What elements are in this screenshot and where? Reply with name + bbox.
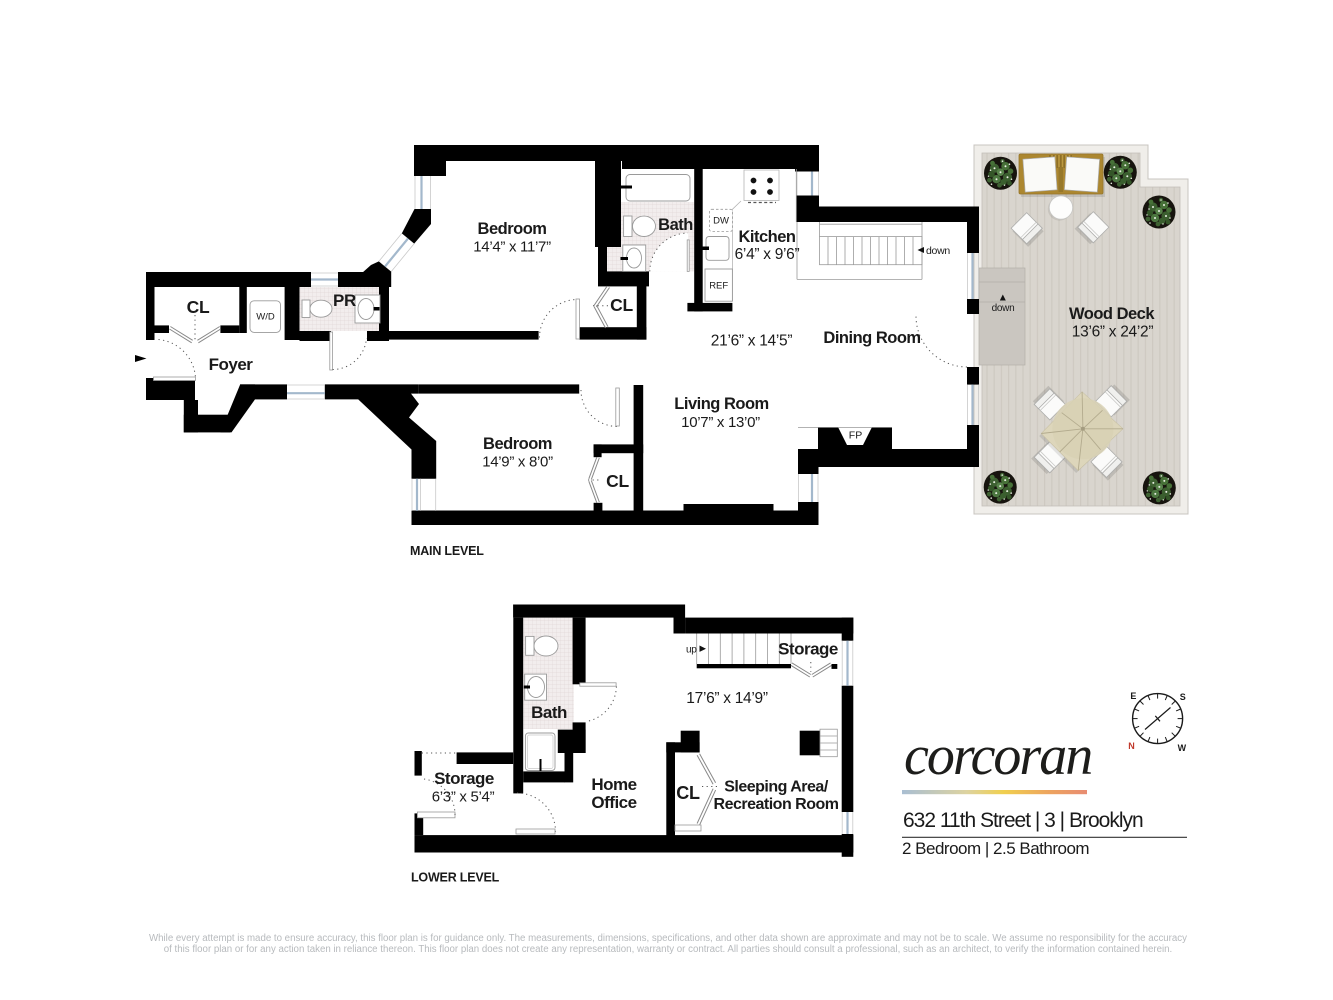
- svg-text:CL: CL: [676, 783, 700, 803]
- svg-text:21’6” x 14’5”: 21’6” x 14’5”: [711, 333, 793, 350]
- svg-text:Sleeping Area/: Sleeping Area/: [724, 779, 829, 796]
- svg-text:10’7” x 13’0”: 10’7” x 13’0”: [681, 414, 760, 431]
- svg-text:While every attempt is made to: While every attempt is made to ensure ac…: [149, 933, 1187, 944]
- svg-text:632 11th Street | 3 | Brooklyn: 632 11th Street | 3 | Brooklyn: [903, 809, 1143, 832]
- svg-text:of this floor plan or for any: of this floor plan or for any action tak…: [164, 944, 1172, 955]
- svg-text:Storage: Storage: [778, 640, 838, 659]
- svg-text:Office: Office: [591, 793, 636, 812]
- svg-text:down: down: [992, 303, 1015, 314]
- svg-text:LOWER LEVEL: LOWER LEVEL: [411, 871, 500, 885]
- svg-text:CL: CL: [606, 471, 629, 491]
- svg-text:Dining Room: Dining Room: [823, 329, 920, 347]
- svg-text:Home: Home: [591, 775, 636, 794]
- svg-text:FP: FP: [849, 430, 862, 442]
- svg-text:W: W: [1178, 743, 1187, 753]
- svg-text:Kitchen: Kitchen: [738, 228, 795, 246]
- svg-text:Living Room: Living Room: [674, 395, 768, 413]
- svg-text:Bath: Bath: [531, 703, 567, 722]
- svg-text:Recreation Room: Recreation Room: [714, 796, 839, 813]
- svg-text:6’3” x 5’4”: 6’3” x 5’4”: [432, 789, 495, 806]
- svg-text:S: S: [1180, 692, 1186, 702]
- svg-text:Bedroom: Bedroom: [483, 435, 552, 453]
- svg-text:N: N: [1128, 741, 1135, 751]
- svg-text:DW: DW: [713, 216, 729, 227]
- svg-text:up: up: [686, 645, 697, 656]
- svg-text:MAIN LEVEL: MAIN LEVEL: [410, 544, 484, 558]
- svg-text:CL: CL: [610, 295, 633, 315]
- svg-text:REF: REF: [709, 281, 728, 292]
- svg-text:Bath: Bath: [658, 216, 693, 234]
- svg-text:Foyer: Foyer: [209, 355, 254, 374]
- svg-text:Bedroom: Bedroom: [478, 220, 547, 238]
- svg-text:Storage: Storage: [434, 769, 494, 788]
- svg-text:CL: CL: [187, 297, 210, 317]
- svg-text:E: E: [1130, 691, 1136, 701]
- svg-text:PR: PR: [333, 291, 356, 310]
- svg-text:2 Bedroom | 2.5 Bathroom: 2 Bedroom | 2.5 Bathroom: [902, 839, 1089, 858]
- svg-text:corcoran: corcoran: [904, 725, 1091, 787]
- svg-text:6’4” x 9’6”: 6’4” x 9’6”: [735, 246, 800, 263]
- svg-text:17’6” x 14’9”: 17’6” x 14’9”: [686, 690, 768, 707]
- svg-text:Wood Deck: Wood Deck: [1069, 305, 1155, 323]
- svg-text:W/D: W/D: [256, 312, 275, 323]
- svg-text:down: down: [926, 245, 950, 257]
- svg-text:13’6” x 24’2”: 13’6” x 24’2”: [1072, 324, 1154, 341]
- svg-text:14’4” x 11’7”: 14’4” x 11’7”: [473, 239, 551, 256]
- svg-text:14’9” x 8’0”: 14’9” x 8’0”: [482, 454, 553, 471]
